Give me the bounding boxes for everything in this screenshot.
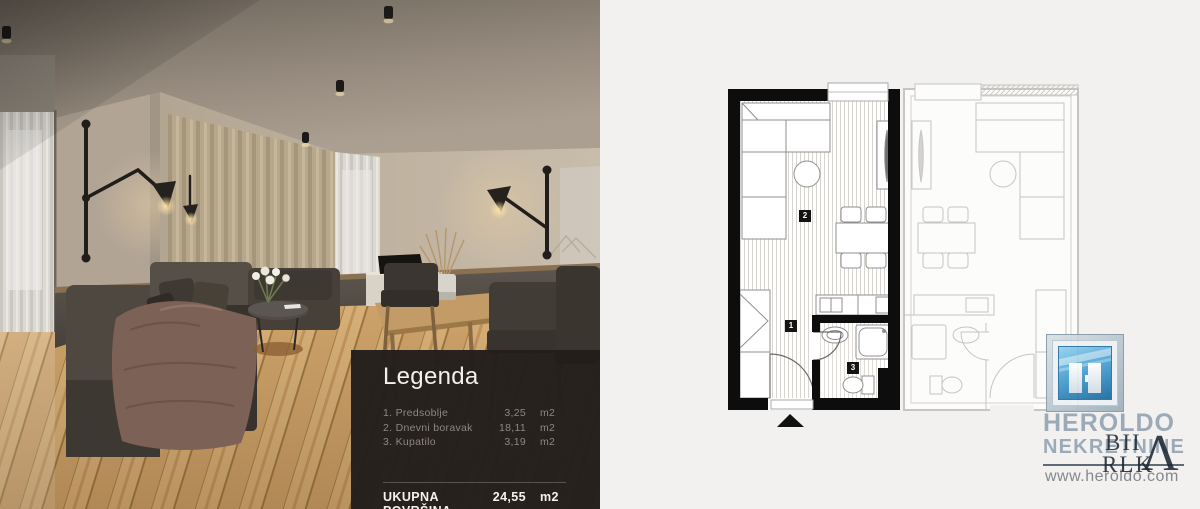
area-unit: m2 [540,406,566,421]
subject-unit [728,83,900,427]
total-label: UKUPNA POVRŠINA [383,490,482,509]
logo-h-bar [1088,363,1101,393]
legend-divider [383,482,566,483]
apartment-photo: Legenda 1. Predsoblje 3,25 m2 2. Dnevni … [0,0,600,509]
coffee-table-plan [794,161,820,187]
room-name: 3. Kupatilo [383,435,482,450]
toilet-plan [843,377,863,393]
legend-total-row: UKUPNA POVRŠINA 24,55 m2 [383,490,566,509]
logo-h-bar [1069,363,1082,393]
blanket [112,301,257,450]
room-number-living: 2 [799,210,811,222]
threshold-plan [771,400,813,409]
dining-table-plan [836,223,893,253]
legend-panel: Legenda 1. Predsoblje 3,25 m2 2. Dnevni … [351,350,600,509]
real-estate-flyer: Legenda 1. Predsoblje 3,25 m2 2. Dnevni … [0,0,1200,509]
area-unit: m2 [540,421,566,436]
room-name: 1. Predsoblje [383,406,482,421]
room-area: 3,25 [482,406,526,421]
room-area: 18,11 [482,421,526,436]
legend-item: 1. Predsoblje 3,25 m2 [383,406,566,421]
room-name: 2. Dnevni boravak [383,421,482,436]
toilet-tank-plan [862,376,874,394]
room-number-bath: 3 [847,362,859,374]
logo-icon-house [1058,346,1112,400]
legend-item: 3. Kupatilo 3,19 m2 [383,435,566,450]
room-number-hall: 1 [785,320,797,332]
total-unit: m2 [540,490,566,509]
legend-item: 2. Dnevni boravak 18,11 m2 [383,421,566,436]
floor-plan-pane: 1 2 3 HEROLDO NEKRETNINE www.heroldo.com… [600,0,1200,509]
room-area: 3,19 [482,435,526,450]
legend-title: Legenda [383,363,566,391]
total-area: 24,55 [482,490,526,509]
heroldo-logo-icon [1046,334,1124,412]
watermark-accent: Λ [1141,424,1179,483]
area-unit: m2 [540,435,566,450]
